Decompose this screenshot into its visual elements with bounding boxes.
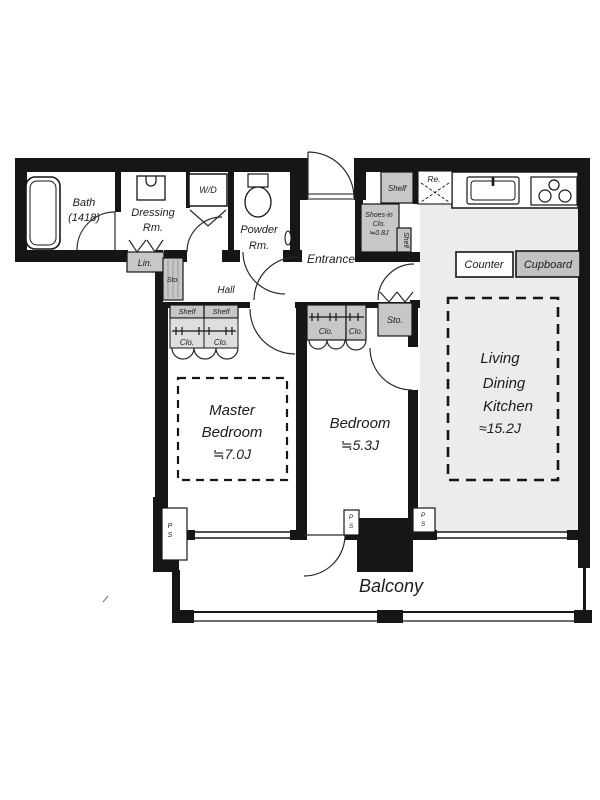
bedroom-door bbox=[370, 348, 412, 390]
shoes-closet-label: Shoes-in bbox=[365, 212, 393, 219]
toilet bbox=[245, 174, 271, 217]
bath-size-label: (1418) bbox=[68, 212, 100, 224]
ldk-window bbox=[437, 532, 567, 538]
cupboard-label: Cupboard bbox=[524, 259, 573, 271]
refrigerator-label: Re. bbox=[427, 174, 440, 184]
washbasin bbox=[137, 176, 165, 200]
balcony-outline bbox=[103, 568, 592, 623]
ps-left-p: P bbox=[168, 523, 173, 530]
shoes-closet-label3: ≒0.8J bbox=[369, 230, 389, 237]
master-window bbox=[195, 532, 290, 538]
stove bbox=[531, 177, 577, 205]
bedroom-size: ≒5.3J bbox=[341, 437, 380, 453]
shelf-entry-top-label: Shelf bbox=[388, 184, 407, 193]
floor-plan-canvas: Bath (1418) Dressing Rm. W/D Powder Rm. … bbox=[0, 0, 600, 800]
ldk-door bbox=[378, 264, 414, 300]
master-shelf1-label: Shelf bbox=[178, 307, 196, 316]
ps-left-s: S bbox=[168, 532, 173, 539]
ldk-size: ≈15.2J bbox=[479, 420, 522, 436]
ps-right-s: S bbox=[421, 521, 426, 528]
powder-label2: Rm. bbox=[249, 240, 269, 252]
kitchen-counter-band bbox=[452, 172, 578, 208]
entrance-label: Entrance bbox=[307, 252, 355, 266]
powder-label: Powder bbox=[240, 224, 279, 236]
master-bedroom-door bbox=[250, 309, 295, 354]
sto-bedroom-bifold-door bbox=[380, 292, 413, 302]
dressing-label2: Rm. bbox=[143, 222, 163, 234]
pillar bbox=[357, 518, 413, 572]
hall-label: Hall bbox=[217, 285, 235, 296]
ps-mid-p: P bbox=[349, 514, 354, 521]
bathtub bbox=[26, 177, 60, 249]
balcony-label: Balcony bbox=[359, 576, 424, 596]
lin-label: Lin. bbox=[138, 258, 153, 268]
sto-bedroom-label: Sto. bbox=[387, 315, 403, 325]
master-clo2-label: Clo. bbox=[214, 338, 228, 347]
shelf-entry-side-label: Shelf bbox=[402, 232, 409, 249]
master-clo1-label: Clo. bbox=[180, 338, 194, 347]
sto-hall-label: Sto. bbox=[167, 277, 180, 284]
bedroom-clo1-label: Clo. bbox=[319, 327, 333, 336]
entrance-door bbox=[308, 152, 354, 198]
bedroom-label: Bedroom bbox=[330, 415, 391, 432]
counter-label: Counter bbox=[464, 259, 504, 271]
ldk-label3: Kitchen bbox=[483, 398, 533, 415]
ps-box-left bbox=[162, 508, 187, 560]
powder-door-knob bbox=[285, 231, 291, 245]
floor-plan: Bath (1418) Dressing Rm. W/D Powder Rm. … bbox=[0, 0, 600, 800]
wd-label: W/D bbox=[199, 185, 217, 195]
master-bedroom-size: ≒7.0J bbox=[213, 446, 252, 462]
master-bedroom-label2: Bedroom bbox=[202, 424, 263, 441]
entrance-threshold bbox=[308, 194, 354, 199]
ps-right-p: P bbox=[421, 512, 426, 519]
shoes-closet-label2: Clo. bbox=[373, 221, 386, 228]
ldk-label: Living bbox=[480, 350, 520, 367]
dressing-label: Dressing bbox=[131, 207, 175, 219]
ps-mid-s: S bbox=[349, 523, 354, 530]
master-shelf2-label: Shelf bbox=[212, 307, 230, 316]
bedroom-clo2-label: Clo. bbox=[349, 327, 363, 336]
wd-bifold-door bbox=[190, 210, 226, 226]
bath-label: Bath bbox=[73, 197, 96, 209]
kitchen-sink bbox=[467, 177, 519, 204]
balcony-door bbox=[304, 535, 345, 576]
master-bedroom-label: Master bbox=[209, 402, 256, 419]
ldk-label2: Dining bbox=[483, 375, 526, 392]
